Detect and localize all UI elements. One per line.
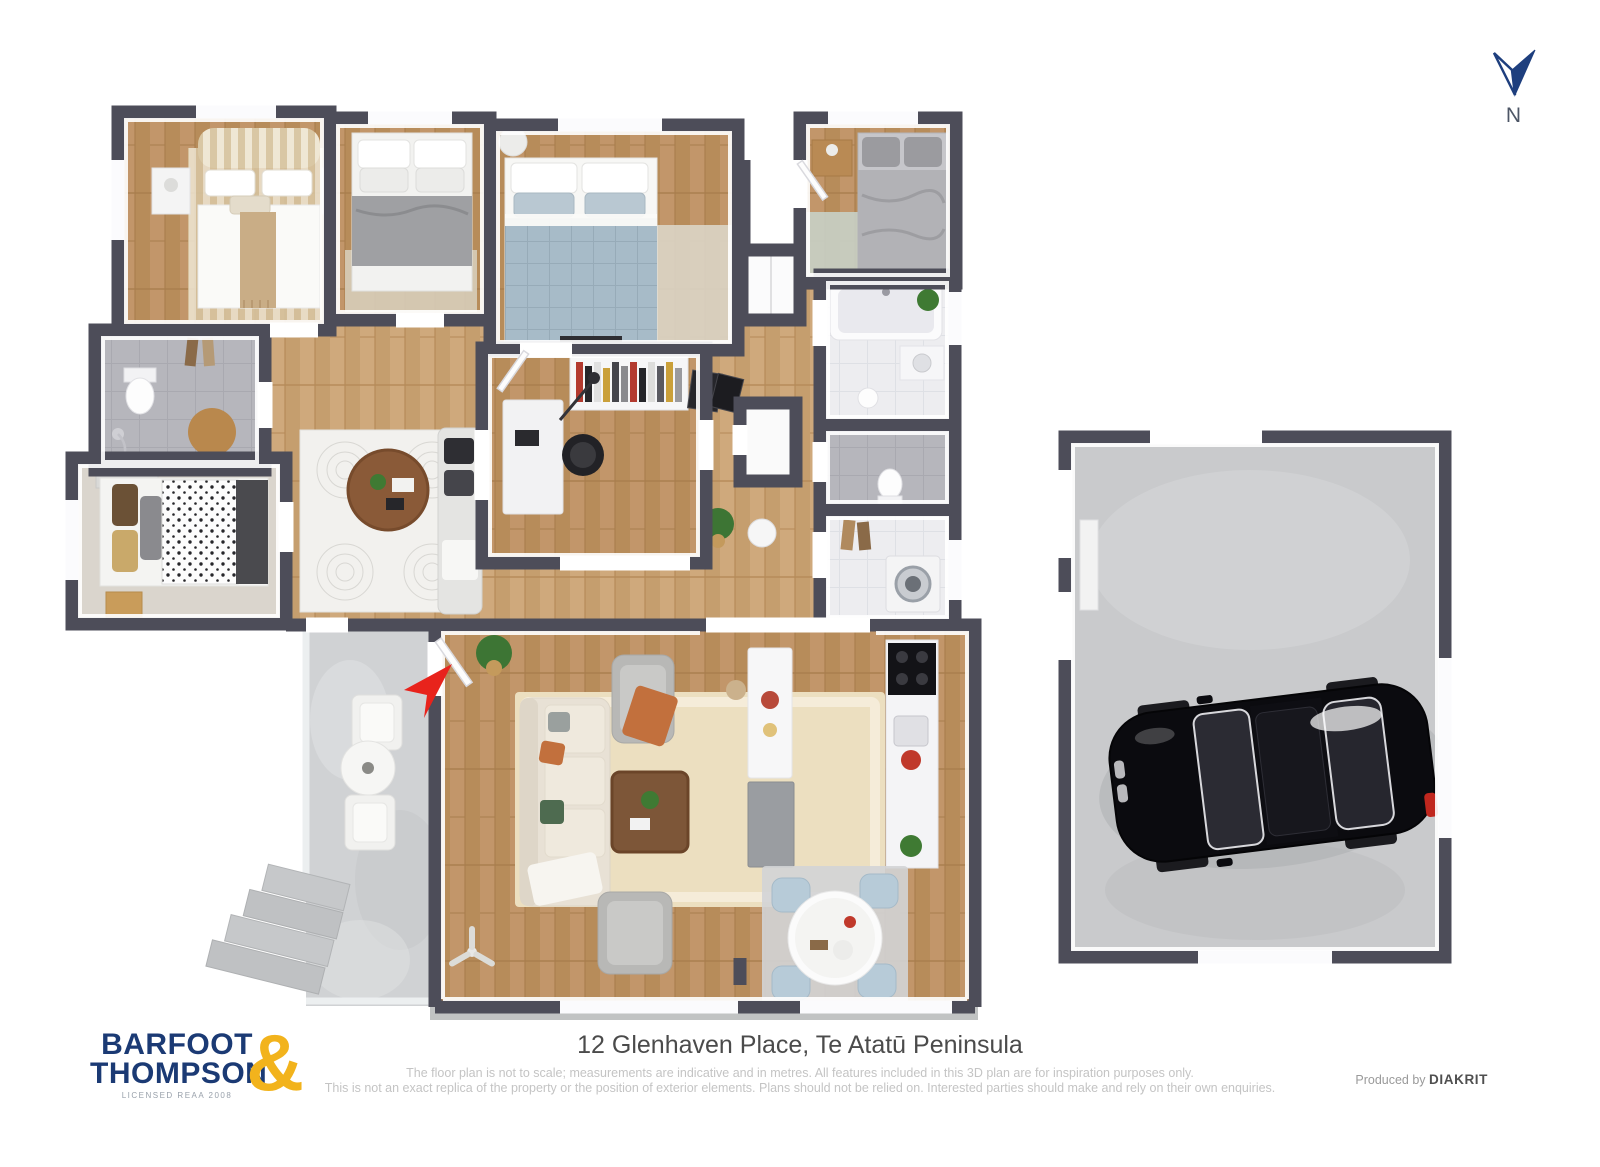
bed bbox=[100, 478, 268, 586]
bed bbox=[352, 133, 472, 291]
duvet bbox=[858, 170, 948, 279]
toilet bbox=[878, 469, 902, 499]
desk-chair bbox=[562, 434, 604, 476]
master-bedroom bbox=[490, 125, 738, 350]
stove bbox=[888, 643, 936, 695]
plant bbox=[917, 289, 939, 311]
pillow bbox=[112, 530, 138, 572]
bath-mat bbox=[188, 408, 236, 456]
main-house bbox=[72, 112, 975, 1007]
duvet bbox=[162, 480, 238, 584]
living-room bbox=[435, 625, 975, 1007]
bookshelf bbox=[570, 354, 688, 410]
outdoor-chair bbox=[345, 795, 395, 850]
vanity bbox=[900, 346, 944, 380]
duvet bbox=[505, 218, 657, 343]
armchair bbox=[612, 655, 679, 748]
toilet bbox=[124, 368, 156, 414]
shelf bbox=[1080, 520, 1098, 610]
towel bbox=[202, 338, 215, 367]
stool bbox=[858, 388, 878, 408]
garage bbox=[1065, 437, 1457, 957]
rug bbox=[806, 212, 866, 278]
linen-closet bbox=[744, 407, 794, 479]
plant bbox=[900, 835, 922, 857]
fruit-bowl bbox=[901, 750, 921, 770]
throw-blanket bbox=[240, 212, 276, 308]
pillow bbox=[112, 484, 138, 526]
pillow bbox=[540, 800, 564, 824]
floorplan-page: N BARFOOT THOMPSON & LICENSED REAA 2008 … bbox=[0, 0, 1600, 1167]
producer-name: DIAKRIT bbox=[1429, 1072, 1488, 1087]
bed bbox=[505, 158, 657, 348]
compass-icon bbox=[1490, 48, 1538, 98]
produced-by-label: Produced by bbox=[1355, 1073, 1425, 1087]
laptop bbox=[515, 430, 539, 446]
sofa bbox=[520, 698, 610, 907]
shower-room bbox=[95, 330, 265, 470]
towel bbox=[857, 522, 871, 551]
bedroom-2 bbox=[330, 118, 490, 320]
kitchen-island bbox=[748, 648, 792, 778]
stool bbox=[726, 680, 746, 700]
bedroom-5 bbox=[72, 458, 286, 624]
producer-credit: Produced by DIAKRIT bbox=[1355, 1072, 1488, 1087]
outdoor-chair bbox=[352, 695, 402, 750]
duvet bbox=[352, 196, 472, 266]
stool bbox=[748, 519, 776, 547]
floorplan-svg bbox=[0, 0, 1600, 1020]
lounge-nook bbox=[300, 428, 482, 614]
pillow bbox=[538, 740, 565, 766]
compass-label: N bbox=[1482, 104, 1546, 128]
bed bbox=[198, 128, 320, 308]
outdoor-table bbox=[341, 741, 395, 795]
dining-table bbox=[788, 891, 882, 985]
compass: N bbox=[1482, 48, 1546, 128]
laundry bbox=[820, 510, 955, 625]
rug bbox=[655, 225, 733, 343]
armchair bbox=[598, 892, 672, 974]
desk bbox=[503, 400, 563, 514]
dining-area bbox=[762, 866, 908, 1006]
pillow bbox=[548, 712, 570, 732]
bed bbox=[858, 133, 948, 279]
bathroom bbox=[820, 275, 955, 425]
property-address: 12 Glenhaven Place, Te Atatū Peninsula bbox=[0, 1031, 1600, 1060]
wc bbox=[820, 425, 955, 510]
fridge bbox=[748, 782, 794, 867]
washing-machine bbox=[886, 556, 940, 612]
sink bbox=[894, 716, 928, 746]
blanket bbox=[236, 480, 268, 584]
coffee-table bbox=[612, 772, 688, 852]
coffee-table bbox=[348, 450, 428, 530]
